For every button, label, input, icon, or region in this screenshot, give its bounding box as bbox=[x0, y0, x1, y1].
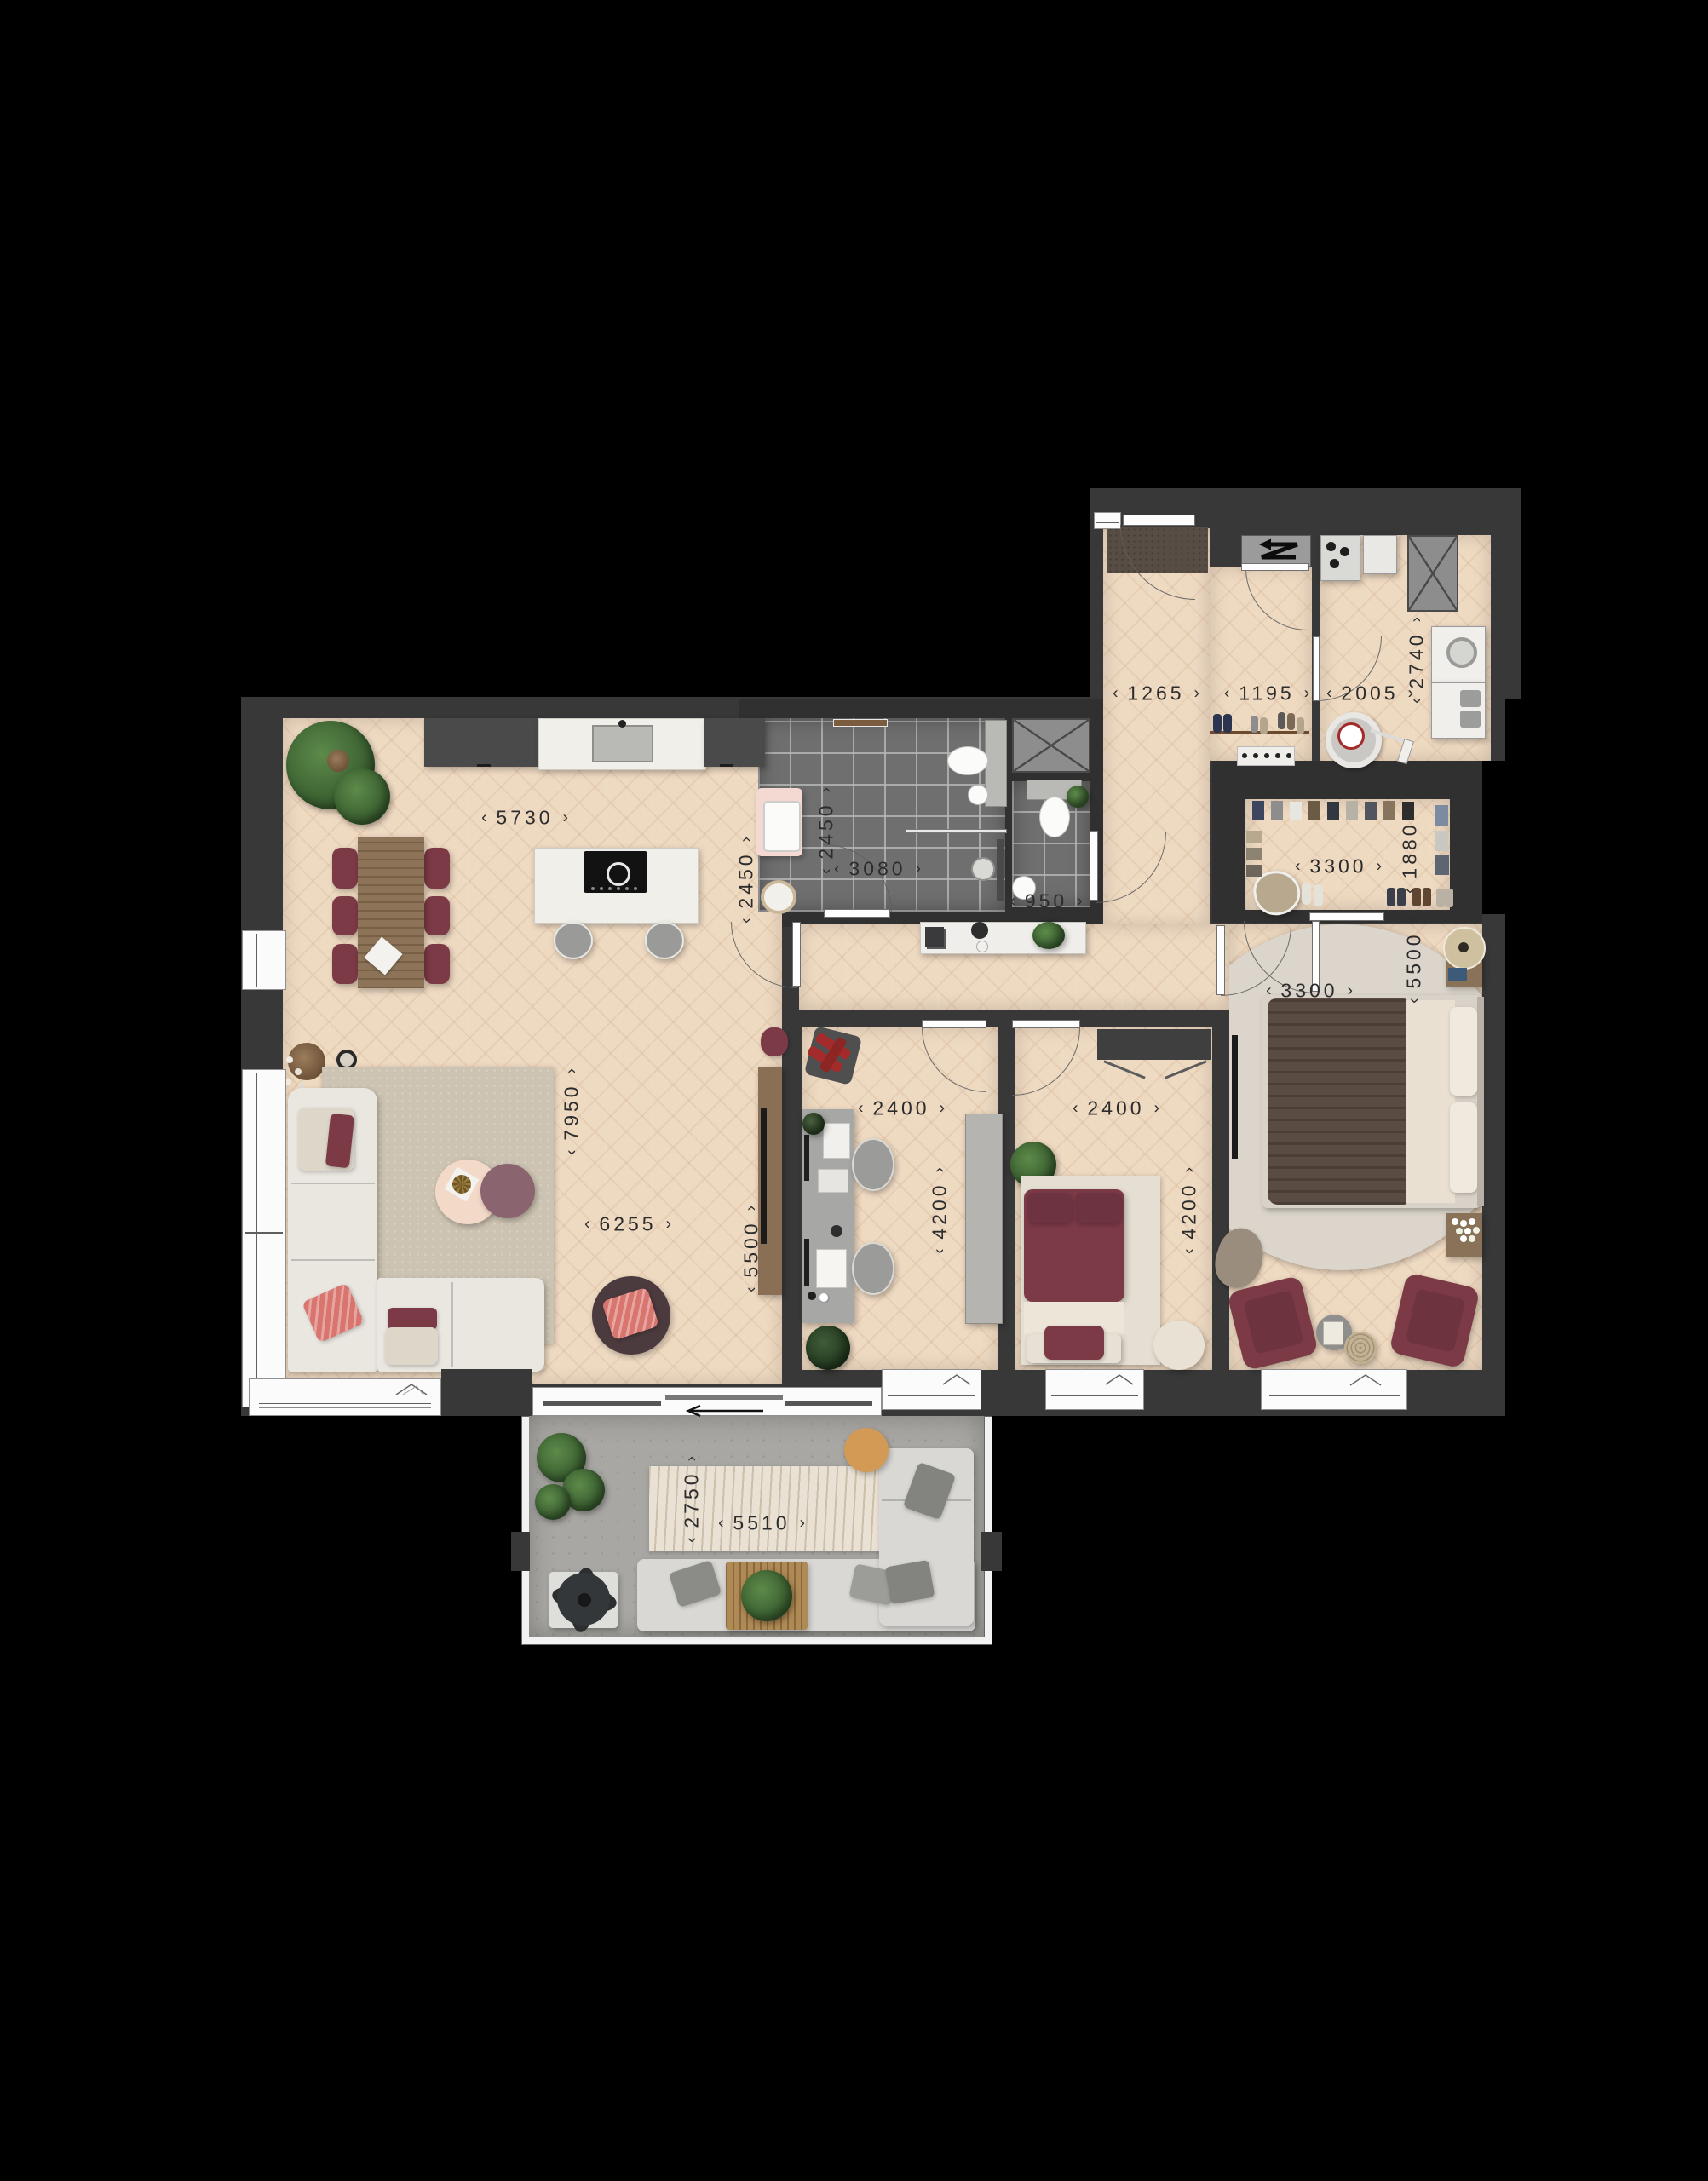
window-study bbox=[882, 1369, 981, 1410]
dim-living-total-depth: ‹7950› bbox=[561, 1068, 584, 1155]
bedroom2-wardrobe bbox=[1097, 1029, 1211, 1060]
console-books bbox=[925, 927, 944, 947]
console-plant bbox=[1032, 922, 1065, 949]
study-plant bbox=[806, 1326, 850, 1370]
utility-door-leaf bbox=[1313, 636, 1320, 701]
desk-plant bbox=[802, 1113, 825, 1135]
dining-chair bbox=[332, 896, 358, 935]
balcony-pier-left bbox=[511, 1532, 530, 1571]
dim-bathroom-width: ‹3080› bbox=[834, 858, 921, 881]
beanbag bbox=[761, 1027, 788, 1056]
facade-step-cutout bbox=[1482, 761, 1505, 914]
dim-kitchen-depth: ‹2450› bbox=[735, 837, 758, 924]
office-chair bbox=[852, 1138, 894, 1191]
towel-basket bbox=[761, 880, 796, 914]
utility-sink-counter bbox=[1363, 535, 1397, 574]
balcony-plant bbox=[535, 1484, 571, 1520]
closet-clothes-row bbox=[1252, 801, 1264, 820]
kitchen-counter-left bbox=[424, 718, 538, 767]
dim-study-depth: ‹4200› bbox=[929, 1167, 952, 1254]
shower-column bbox=[997, 839, 1004, 901]
nightstand-flowers bbox=[1452, 1218, 1458, 1225]
dark-leaf-plant bbox=[545, 1561, 624, 1639]
dim-corridor-width: ‹1265› bbox=[1113, 682, 1199, 705]
desk-monitor bbox=[804, 1239, 809, 1286]
dim-study-width: ‹2400› bbox=[858, 1097, 945, 1120]
desk-monitor bbox=[804, 1135, 809, 1181]
kitchen-plant-pot bbox=[327, 750, 349, 772]
entry-sidelight bbox=[1094, 512, 1121, 529]
window-left-tall bbox=[242, 1069, 286, 1407]
island-stool bbox=[645, 922, 684, 959]
window-bedroom2 bbox=[1045, 1369, 1144, 1410]
dim-wc-width: ‹950› bbox=[1009, 890, 1082, 913]
bed-duvet-cream bbox=[1406, 1000, 1455, 1203]
bed-pillow bbox=[1450, 1007, 1477, 1096]
dim-living-depth: ‹5500› bbox=[740, 1206, 763, 1292]
dim-bedroom2-width: ‹2400› bbox=[1073, 1097, 1159, 1120]
bed-pillow bbox=[1027, 1193, 1072, 1223]
balcony-pier-right bbox=[981, 1532, 1002, 1571]
study-door-leaf bbox=[922, 1020, 986, 1028]
kitchen-plant bbox=[334, 768, 390, 825]
dim-living-width: ‹6255› bbox=[584, 1213, 671, 1236]
dining-chair bbox=[332, 848, 358, 889]
bathroom-door-leaf bbox=[824, 909, 890, 918]
bench-pillow bbox=[1044, 1326, 1104, 1360]
shoes bbox=[1297, 717, 1304, 734]
nightstand-lamp-dot bbox=[1458, 942, 1469, 952]
kitchen-faucet bbox=[618, 720, 626, 728]
bathtub-inner bbox=[763, 801, 801, 852]
master-tv bbox=[1232, 1035, 1238, 1159]
console-vase-small bbox=[976, 941, 988, 952]
dim-bedroom-width: ‹3300› bbox=[1266, 980, 1353, 1003]
dried-flowers bbox=[286, 1056, 293, 1063]
dining-chair bbox=[424, 944, 450, 984]
shoes bbox=[1251, 716, 1258, 733]
small-table-jute bbox=[1344, 1332, 1377, 1364]
sofa-cushion bbox=[385, 1327, 438, 1365]
window-left-small bbox=[242, 930, 286, 990]
dim-bedroom-depth: ‹5500› bbox=[1403, 917, 1426, 1004]
dim-closet-depth: ‹1880› bbox=[1399, 807, 1422, 894]
utility-hob-burners bbox=[1326, 542, 1336, 551]
shoes bbox=[1213, 714, 1222, 733]
dining-chair bbox=[424, 896, 450, 935]
dim-utility-width: ‹2005› bbox=[1326, 682, 1413, 705]
vacuum-body bbox=[1337, 722, 1365, 750]
headboard bbox=[1477, 997, 1484, 1206]
dim-utility-depth: ‹2740› bbox=[1406, 617, 1429, 704]
bedroom2-door-leaf bbox=[1012, 1020, 1080, 1028]
counter-handle bbox=[720, 764, 733, 767]
shoes bbox=[1278, 712, 1285, 729]
dim-bedroom2-depth: ‹4200› bbox=[1178, 1167, 1201, 1254]
island-stool bbox=[554, 922, 593, 959]
toilet-bowl bbox=[947, 746, 988, 775]
washer-door bbox=[1446, 637, 1477, 668]
shaft-box bbox=[1012, 718, 1090, 773]
bed-pillow bbox=[1450, 1102, 1477, 1193]
kitchen-counter-right bbox=[704, 718, 765, 767]
balcony-railing-right bbox=[984, 1416, 992, 1645]
hob-dots bbox=[591, 887, 595, 890]
closet-clothes-left bbox=[1246, 831, 1262, 843]
bathroom-small-sink bbox=[968, 785, 988, 805]
round-side-table bbox=[844, 1428, 889, 1472]
closet-shoes-bottom bbox=[1387, 888, 1395, 906]
sofa-seam bbox=[291, 1259, 375, 1261]
desk-laptop bbox=[816, 1249, 847, 1288]
dining-chair bbox=[332, 944, 358, 984]
window-master bbox=[1261, 1369, 1407, 1410]
magazine bbox=[1323, 1321, 1343, 1345]
shower-glass bbox=[906, 829, 1007, 833]
towel-rail bbox=[833, 719, 888, 727]
pouf bbox=[1153, 1321, 1205, 1370]
dim-closet-width: ‹3300› bbox=[1295, 855, 1382, 878]
gold-flower bbox=[452, 1175, 471, 1194]
closet-door-threshold bbox=[1309, 912, 1384, 921]
nightstand-book bbox=[1448, 968, 1467, 981]
coffee-table-mauve bbox=[480, 1164, 535, 1218]
meter-cabinet-arrow-icon bbox=[1248, 538, 1303, 563]
slippers bbox=[1302, 883, 1311, 905]
hall-door-leaf bbox=[792, 922, 801, 987]
hob-ring bbox=[607, 862, 630, 886]
meter-cabinet-front bbox=[1241, 563, 1309, 571]
dried-flower-pot bbox=[288, 1043, 325, 1080]
shoe-rack-dots bbox=[1242, 753, 1247, 758]
outdoor-pillow bbox=[885, 1560, 935, 1604]
bed-pillow bbox=[1075, 1193, 1121, 1223]
desk-papers bbox=[818, 1169, 848, 1193]
bed-throw-dark bbox=[1268, 998, 1407, 1205]
desk-lamp bbox=[831, 1225, 842, 1237]
shower-head bbox=[971, 857, 995, 881]
entry-door-leaf bbox=[1123, 515, 1195, 526]
dim-kitchen-width: ‹5730› bbox=[481, 807, 568, 830]
master-door-leaf bbox=[1216, 925, 1225, 995]
floor-plan: ‹5730› ‹2450› ‹2450› ‹3080› ‹950› ‹1265›… bbox=[0, 0, 1708, 2181]
sofa-seam bbox=[291, 1183, 375, 1184]
desk-keyboard bbox=[823, 1123, 850, 1159]
desk-deco-dots bbox=[808, 1292, 816, 1300]
study-cabinet bbox=[965, 1114, 1003, 1324]
sofa-seam bbox=[451, 1282, 453, 1367]
table-plant bbox=[741, 1570, 792, 1621]
walk-direction-arrow-icon bbox=[681, 1404, 767, 1418]
wc-bowl bbox=[1039, 797, 1070, 837]
counter-handle bbox=[477, 764, 491, 767]
dim-balcony-width: ‹5510› bbox=[718, 1512, 805, 1535]
dim-vestibule-width: ‹1195› bbox=[1224, 682, 1309, 705]
utility-hob-counter bbox=[1320, 535, 1360, 581]
console-vase-dark bbox=[971, 922, 988, 939]
dim-balcony-depth: ‹2750› bbox=[681, 1456, 704, 1543]
kitchen-sink bbox=[592, 725, 653, 762]
facade-pier bbox=[441, 1369, 532, 1416]
dining-chair bbox=[424, 848, 450, 889]
closet-clothes-right bbox=[1435, 805, 1448, 826]
wc-plant bbox=[1067, 786, 1089, 808]
wc-door-leaf bbox=[1090, 831, 1098, 901]
window-living-bottom bbox=[249, 1378, 441, 1416]
dryer-drawer bbox=[1460, 690, 1481, 707]
utility-shaft bbox=[1407, 535, 1458, 612]
office-chair bbox=[852, 1242, 894, 1295]
shoe-rack-rail bbox=[1210, 731, 1309, 734]
